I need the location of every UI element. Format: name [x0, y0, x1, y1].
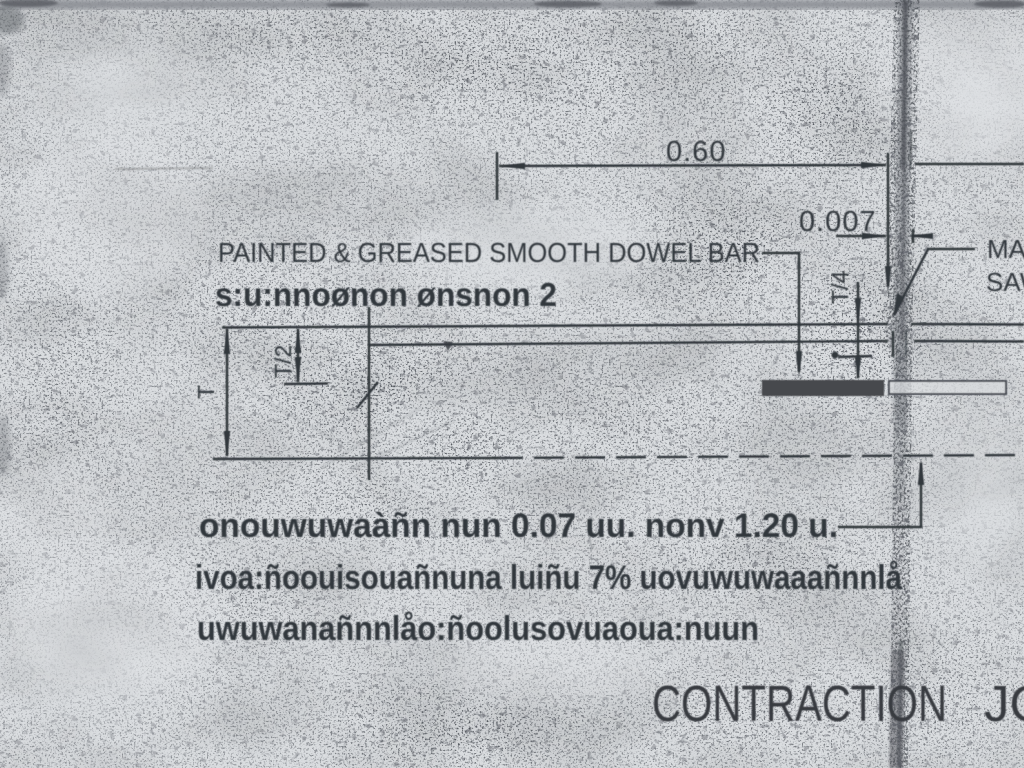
svg-text:SAWC: SAWC: [986, 267, 1024, 297]
svg-text:JO: JO: [984, 675, 1024, 732]
svg-text:s:u:nnoønon ønsnon 2: s:u:nnoønon ønsnon 2: [215, 276, 557, 313]
svg-text:T/2: T/2: [270, 345, 296, 378]
svg-text:MAST: MAST: [987, 234, 1024, 264]
svg-text:T: T: [193, 385, 219, 399]
svg-text:uwuwanañnnlåo:ñoolusovuaouа:nu: uwuwanañnnlåo:ñoolusovuaouа:nuun: [197, 610, 759, 648]
svg-text:0.60: 0.60: [666, 136, 726, 168]
svg-text:onouwuwaàñn nun 0.07 uu. n: onouwuwaàñn nun 0.07 uu. nonv 1.20 u.: [199, 507, 838, 545]
svg-text:0.007: 0.007: [799, 206, 877, 238]
svg-text:T/4: T/4: [827, 271, 853, 304]
svg-text:CONTRACTION: CONTRACTION: [652, 675, 947, 732]
svg-text:ivoa:ñoouisouañnuna luiñu 7%: ivoa:ñoouisouañnuna luiñu 7% uovuwuwaaañ…: [195, 559, 902, 597]
svg-text:PAINTED & GREASED SMOOTH DOWEL: PAINTED & GREASED SMOOTH DOWEL BAR: [218, 237, 760, 268]
